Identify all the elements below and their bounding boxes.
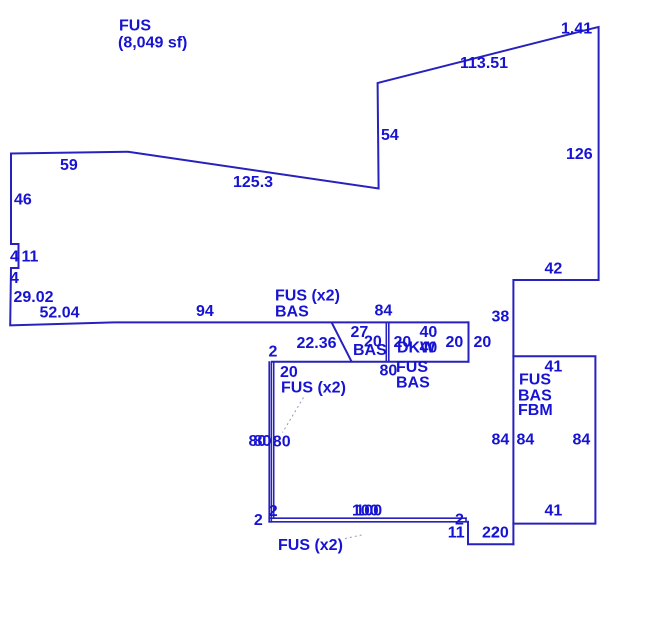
- svg-text:40: 40: [420, 340, 438, 357]
- svg-text:41: 41: [545, 503, 563, 520]
- svg-text:80: 80: [273, 433, 291, 450]
- svg-text:20: 20: [491, 524, 509, 541]
- svg-text:84: 84: [573, 432, 591, 449]
- svg-text:2: 2: [254, 512, 263, 529]
- svg-text:2: 2: [269, 344, 278, 361]
- svg-text:FUS (x2): FUS (x2): [278, 537, 343, 554]
- svg-text:FUS: FUS: [119, 18, 151, 35]
- svg-text:125.3: 125.3: [233, 174, 273, 191]
- svg-text:29.02: 29.02: [14, 289, 54, 306]
- svg-text:38: 38: [492, 309, 510, 326]
- svg-text:2: 2: [269, 503, 278, 520]
- svg-text:(8,049 sf): (8,049 sf): [118, 35, 187, 52]
- svg-text:100: 100: [355, 502, 382, 519]
- svg-text:113.51: 113.51: [460, 55, 508, 72]
- svg-text:84: 84: [375, 303, 393, 320]
- svg-text:FUS (x2): FUS (x2): [275, 288, 340, 305]
- svg-text:84: 84: [517, 432, 535, 449]
- svg-text:4: 4: [10, 249, 19, 266]
- svg-text:BAS: BAS: [396, 375, 430, 392]
- svg-text:20: 20: [474, 334, 492, 351]
- svg-text:84: 84: [492, 432, 510, 449]
- svg-text:1.41: 1.41: [561, 21, 592, 38]
- svg-text:FUS: FUS: [396, 359, 428, 376]
- svg-text:59: 59: [60, 157, 78, 174]
- svg-text:BAS: BAS: [353, 342, 387, 359]
- svg-text:126: 126: [566, 146, 593, 163]
- svg-text:20: 20: [446, 334, 464, 351]
- svg-text:11: 11: [22, 249, 39, 266]
- svg-text:80: 80: [380, 362, 398, 379]
- svg-text:54: 54: [381, 127, 399, 144]
- svg-text:11: 11: [448, 525, 465, 542]
- svg-text:80: 80: [254, 433, 272, 450]
- svg-text:FBM: FBM: [518, 402, 553, 419]
- svg-text:46: 46: [14, 192, 32, 209]
- svg-text:94: 94: [196, 303, 214, 320]
- svg-text:42: 42: [545, 261, 563, 278]
- svg-text:FUS (x2): FUS (x2): [281, 379, 346, 396]
- svg-text:22.36: 22.36: [297, 335, 337, 352]
- svg-text:4: 4: [10, 270, 19, 287]
- svg-text:52.04: 52.04: [40, 305, 80, 322]
- svg-text:BAS: BAS: [275, 304, 309, 321]
- svg-text:FUS: FUS: [519, 371, 551, 388]
- svg-text:40: 40: [420, 324, 438, 341]
